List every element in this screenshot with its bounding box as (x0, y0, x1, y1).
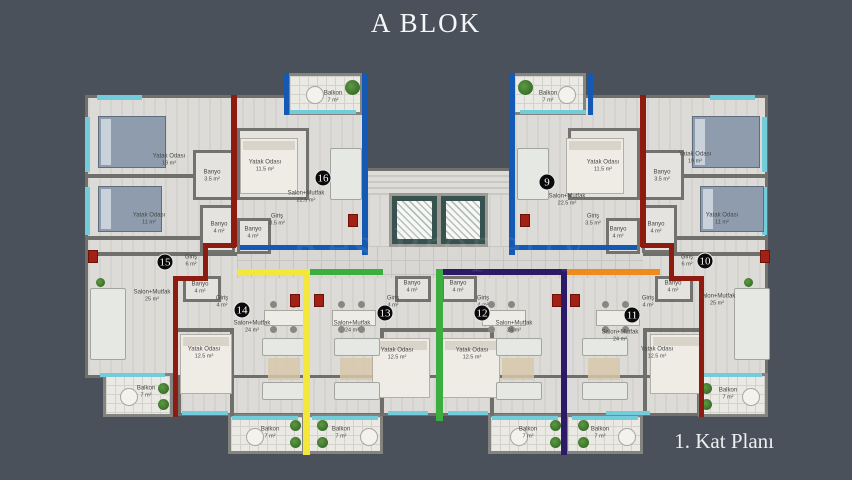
room-label: Banyo4 m² (403, 281, 420, 294)
window-strip (492, 416, 558, 420)
plant (290, 437, 301, 448)
kitchen-item (88, 250, 98, 263)
sofa (734, 288, 770, 360)
chair (602, 301, 609, 308)
chair (358, 301, 365, 308)
balcony-table (558, 86, 576, 104)
plant (345, 80, 360, 95)
unit-boundary-line (588, 73, 593, 115)
kitchen-item (314, 294, 324, 307)
unit-boundary-line (284, 73, 289, 115)
room-label: Salon+Mutfak24 m² (496, 321, 533, 334)
floor-plan-canvas: A BLOK Yatak Odası19 m²Yatak Odası11 m²B… (0, 0, 852, 480)
interior-wall (380, 328, 440, 332)
window-strip (97, 95, 142, 100)
floor-plan: Yatak Odası19 m²Yatak Odası11 m²Banyo3.5… (0, 0, 852, 480)
plan-caption: 1. Kat Planı (674, 429, 774, 454)
room-label: Banyo4 m² (449, 281, 466, 294)
interior-wall (643, 328, 700, 332)
unit-boundary-line (231, 95, 237, 247)
sofa (334, 338, 380, 356)
chair (290, 326, 297, 333)
room-label: Giriş6 m² (681, 255, 693, 268)
unit-boundary-line (641, 243, 672, 248)
room-label: Balkon7 m² (591, 427, 609, 440)
room-label: Yatak Odası12.5 m² (188, 347, 221, 360)
elevator-shaft (392, 196, 437, 244)
balcony-table (618, 428, 636, 446)
room-label: Yatak Odası12.5 m² (456, 348, 489, 361)
plant (158, 383, 169, 394)
room-label: Banyo4 m² (210, 222, 227, 235)
sofa (90, 288, 126, 360)
room-label: Giriş4 m² (216, 296, 228, 309)
rug (502, 358, 534, 380)
sofa (496, 382, 542, 400)
window-strip (182, 411, 228, 415)
unit-boundary-line (303, 269, 310, 455)
room-label: Salon+Mutfak24 m² (602, 330, 639, 343)
unit-badge: 16 (315, 170, 332, 187)
bed (650, 334, 702, 394)
room-label: Balkon7 m² (137, 386, 155, 399)
window-strip (290, 110, 356, 114)
unit-boundary-line (567, 269, 660, 275)
room-label: Giriş3.5 m² (269, 214, 285, 227)
chair (488, 326, 495, 333)
room-label: Banyo4 m² (191, 282, 208, 295)
balcony-table (306, 86, 324, 104)
sofa (262, 338, 308, 356)
window-strip (520, 110, 586, 114)
window-strip (85, 187, 90, 235)
balcony-table (360, 428, 378, 446)
room-label: Balkon7 m² (519, 427, 537, 440)
window-strip (85, 117, 90, 172)
unit-boundary-line (513, 245, 637, 250)
plant (317, 437, 328, 448)
rug (340, 358, 372, 380)
window-strip (388, 411, 428, 415)
unit-boundary-line (509, 73, 515, 255)
unit-boundary-line (443, 269, 567, 275)
sofa (262, 382, 308, 400)
elevator-shaft (441, 196, 485, 244)
room-label: Balkon7 m² (324, 91, 342, 104)
sofa (496, 338, 542, 356)
unit-boundary-line (436, 269, 443, 421)
room-label: Yatak Odası19 m² (153, 154, 186, 167)
plant (550, 437, 561, 448)
room-label: Banyo4 m² (647, 222, 664, 235)
window-strip (232, 416, 298, 420)
room-label: Balkon7 m² (261, 427, 279, 440)
window-strip (762, 117, 767, 172)
window-strip (448, 411, 488, 415)
unit-boundary-line (640, 95, 646, 247)
room-label: Balkon7 m² (719, 388, 737, 401)
balcony-table (742, 388, 760, 406)
room-label: Giriş6 m² (185, 255, 197, 268)
room-label: Yatak Odası12.5 m² (381, 348, 414, 361)
kitchen-item (570, 294, 580, 307)
bed (180, 334, 232, 394)
room-label: Balkon7 m² (539, 91, 557, 104)
unit-boundary-line (310, 269, 383, 275)
window-strip (606, 411, 650, 415)
unit-boundary-line (561, 269, 567, 455)
unit-boundary-line (362, 73, 368, 255)
sofa (330, 148, 362, 200)
unit-badge: 14 (234, 302, 251, 319)
kitchen-item (348, 214, 358, 227)
room-label: Yatak Odası11 m² (133, 213, 166, 226)
unit-badge: 9 (539, 174, 556, 191)
kitchen-item (290, 294, 300, 307)
unit-boundary-line (240, 245, 364, 250)
room-label: Giriş4 m² (642, 296, 654, 309)
window-strip (710, 95, 755, 100)
room-label: Yatak Odası19 m² (679, 152, 712, 165)
plant (578, 420, 589, 431)
room-label: Banyo4 m² (609, 227, 626, 240)
unit-boundary-line (173, 276, 178, 417)
sofa (582, 382, 628, 400)
unit-boundary-line (237, 269, 310, 275)
unit-boundary-line (205, 243, 236, 248)
room-label: Banyo4 m² (244, 227, 261, 240)
unit-badge: 15 (157, 254, 174, 271)
room-label: Yatak Odası11 m² (706, 213, 739, 226)
plant (578, 437, 589, 448)
room-label: Salon+Mutfak24 m² (334, 321, 371, 334)
plant (550, 420, 561, 431)
plant (744, 278, 753, 287)
interior-wall (437, 328, 494, 332)
kitchen-item (760, 250, 770, 263)
plant (317, 420, 328, 431)
unit-badge: 12 (474, 305, 491, 322)
room-label: Yatak Odası11.5 m² (587, 160, 620, 173)
room-label: Banyo3.5 m² (653, 170, 670, 183)
unit-badge: 13 (377, 305, 394, 322)
stairwell (368, 171, 509, 195)
chair (338, 301, 345, 308)
window-strip (100, 373, 165, 377)
chair (270, 326, 277, 333)
rug (268, 358, 300, 380)
unit-badge: 10 (697, 253, 714, 270)
room-label: Banyo3.5 m² (203, 170, 220, 183)
room-label: Salon+Mutfak25 m² (699, 294, 736, 307)
room-label: Balkon7 m² (332, 427, 350, 440)
unit-badge: 11 (624, 307, 641, 324)
interior-wall (643, 328, 647, 416)
plant (518, 80, 533, 95)
balcony-table (120, 388, 138, 406)
room-label: Salon+Mutfak22.5 m² (288, 191, 325, 204)
plant (290, 420, 301, 431)
room-label: Salon+Mutfak25 m² (134, 290, 171, 303)
room-label: Yatak Odası11.5 m² (249, 160, 282, 173)
plant (158, 399, 169, 410)
rug (588, 358, 620, 380)
interior-wall (178, 328, 234, 332)
chair (508, 301, 515, 308)
unit-boundary-line (175, 276, 207, 281)
room-label: Yatak Odası12.5 m² (641, 347, 674, 360)
kitchen-item (520, 214, 530, 227)
room-label: Giriş3.5 m² (585, 214, 601, 227)
chair (270, 301, 277, 308)
window-strip (700, 373, 762, 377)
dining-table (264, 310, 308, 326)
room-label: Salon+Mutfak22.5 m² (549, 194, 586, 207)
room-label: Banyo4 m² (664, 281, 681, 294)
plant (96, 278, 105, 287)
sofa (334, 382, 380, 400)
room-label: Salon+Mutfak24 m² (234, 321, 271, 334)
